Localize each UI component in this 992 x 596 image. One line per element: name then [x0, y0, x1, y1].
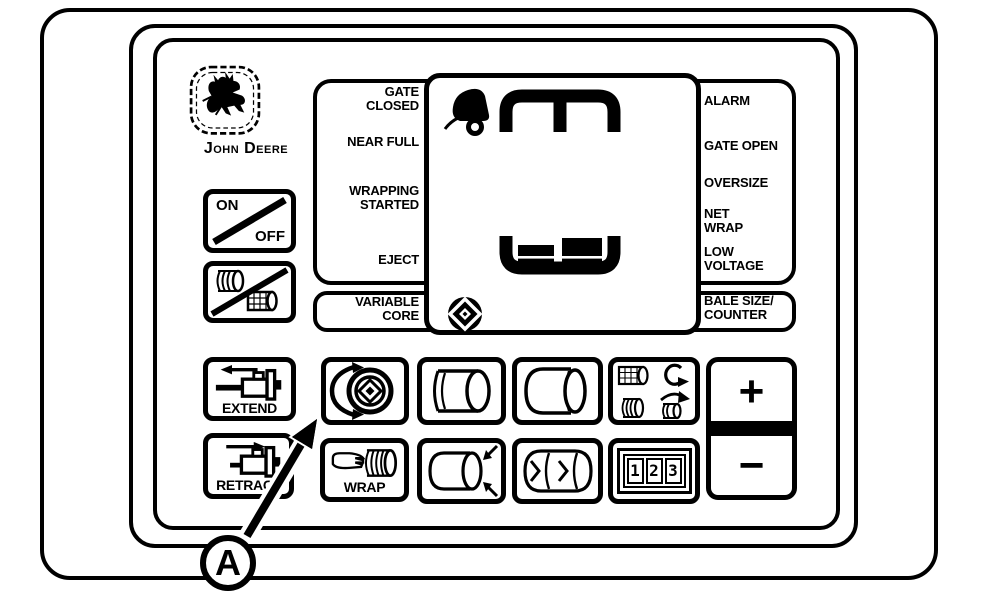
- brand-name: John Deere: [186, 140, 306, 158]
- plus-minus-keypad: + −: [706, 357, 797, 500]
- variable-core-button[interactable]: [321, 357, 409, 425]
- status-gate-open: GATE OPEN: [704, 139, 800, 153]
- callout-a-badge: A: [200, 535, 256, 591]
- twine-and-net-roll-slash-icon: [208, 266, 291, 318]
- decrease-button[interactable]: −: [711, 436, 792, 495]
- john-deere-deer-icon: [186, 64, 264, 138]
- retract-button[interactable]: RETRACT: [203, 433, 294, 499]
- counter-digit: 3: [665, 458, 682, 484]
- bale-diameter-button[interactable]: [417, 438, 506, 504]
- status-oversize: OVERSIZE: [704, 176, 800, 190]
- increase-button[interactable]: +: [711, 362, 792, 421]
- status-bale-size-counter: BALE SIZE/ COUNTER: [704, 294, 800, 322]
- status-wrapping-started: WRAPPING STARTED: [313, 184, 419, 212]
- status-net-wrap: NET WRAP: [704, 207, 800, 235]
- bale-end-arrows-icon: [519, 447, 597, 495]
- round-bale-icon: [426, 365, 498, 417]
- plus-minus-divider: [711, 421, 792, 436]
- status-near-full: NEAR FULL: [313, 135, 419, 149]
- bale-end-wraps-button[interactable]: [512, 438, 603, 504]
- round-bale-mirrored-icon: [521, 364, 595, 418]
- counter-digit: 1: [627, 458, 644, 484]
- status-eject: EJECT: [313, 253, 419, 267]
- twine-net-off-button[interactable]: [203, 261, 296, 323]
- bale-diameter-arrows-icon: [424, 443, 500, 499]
- bale-chamber-top-icon: [498, 82, 622, 134]
- cylinder-extend-icon: [214, 363, 286, 401]
- status-variable-core: VARIABLE CORE: [313, 295, 419, 323]
- net-twine-wrap-select-icon: [615, 362, 693, 420]
- cylinder-retract-icon: [213, 440, 285, 478]
- diagonal-slash-icon: [208, 194, 291, 248]
- status-alarm: ALARM: [704, 94, 800, 108]
- net-twine-wrap-select-button[interactable]: [608, 357, 700, 425]
- variable-core-target-icon: [446, 295, 484, 333]
- variable-core-spiral-arrows-icon: [326, 362, 404, 420]
- hand-pointing-at-roll-icon: [328, 446, 402, 480]
- on-off-button[interactable]: ON OFF: [203, 189, 296, 253]
- display-screen: [424, 73, 701, 335]
- wrap-label: WRAP: [344, 480, 386, 494]
- wrap-button[interactable]: WRAP: [320, 438, 409, 502]
- bale-counter-button[interactable]: 1 2 3: [608, 438, 700, 504]
- bale-fill-bars-icon: [498, 234, 622, 280]
- alarm-bell-icon: [443, 86, 491, 138]
- bale-select-button-1[interactable]: [417, 357, 506, 425]
- brand-logo-block: John Deere: [186, 64, 306, 158]
- digital-counter-123-icon: 1 2 3: [617, 448, 692, 494]
- bale-select-button-2[interactable]: [512, 357, 603, 425]
- retract-label: RETRACT: [216, 478, 281, 492]
- status-gate-closed: GATE CLOSED: [313, 85, 419, 113]
- monitor-panel: John Deere ON OFF EXTEND: [0, 0, 992, 596]
- extend-button[interactable]: EXTEND: [203, 357, 296, 421]
- status-low-voltage: LOW VOLTAGE: [704, 245, 800, 273]
- callout-a-label: A: [215, 542, 241, 584]
- counter-digit: 2: [646, 458, 663, 484]
- extend-label: EXTEND: [222, 401, 277, 415]
